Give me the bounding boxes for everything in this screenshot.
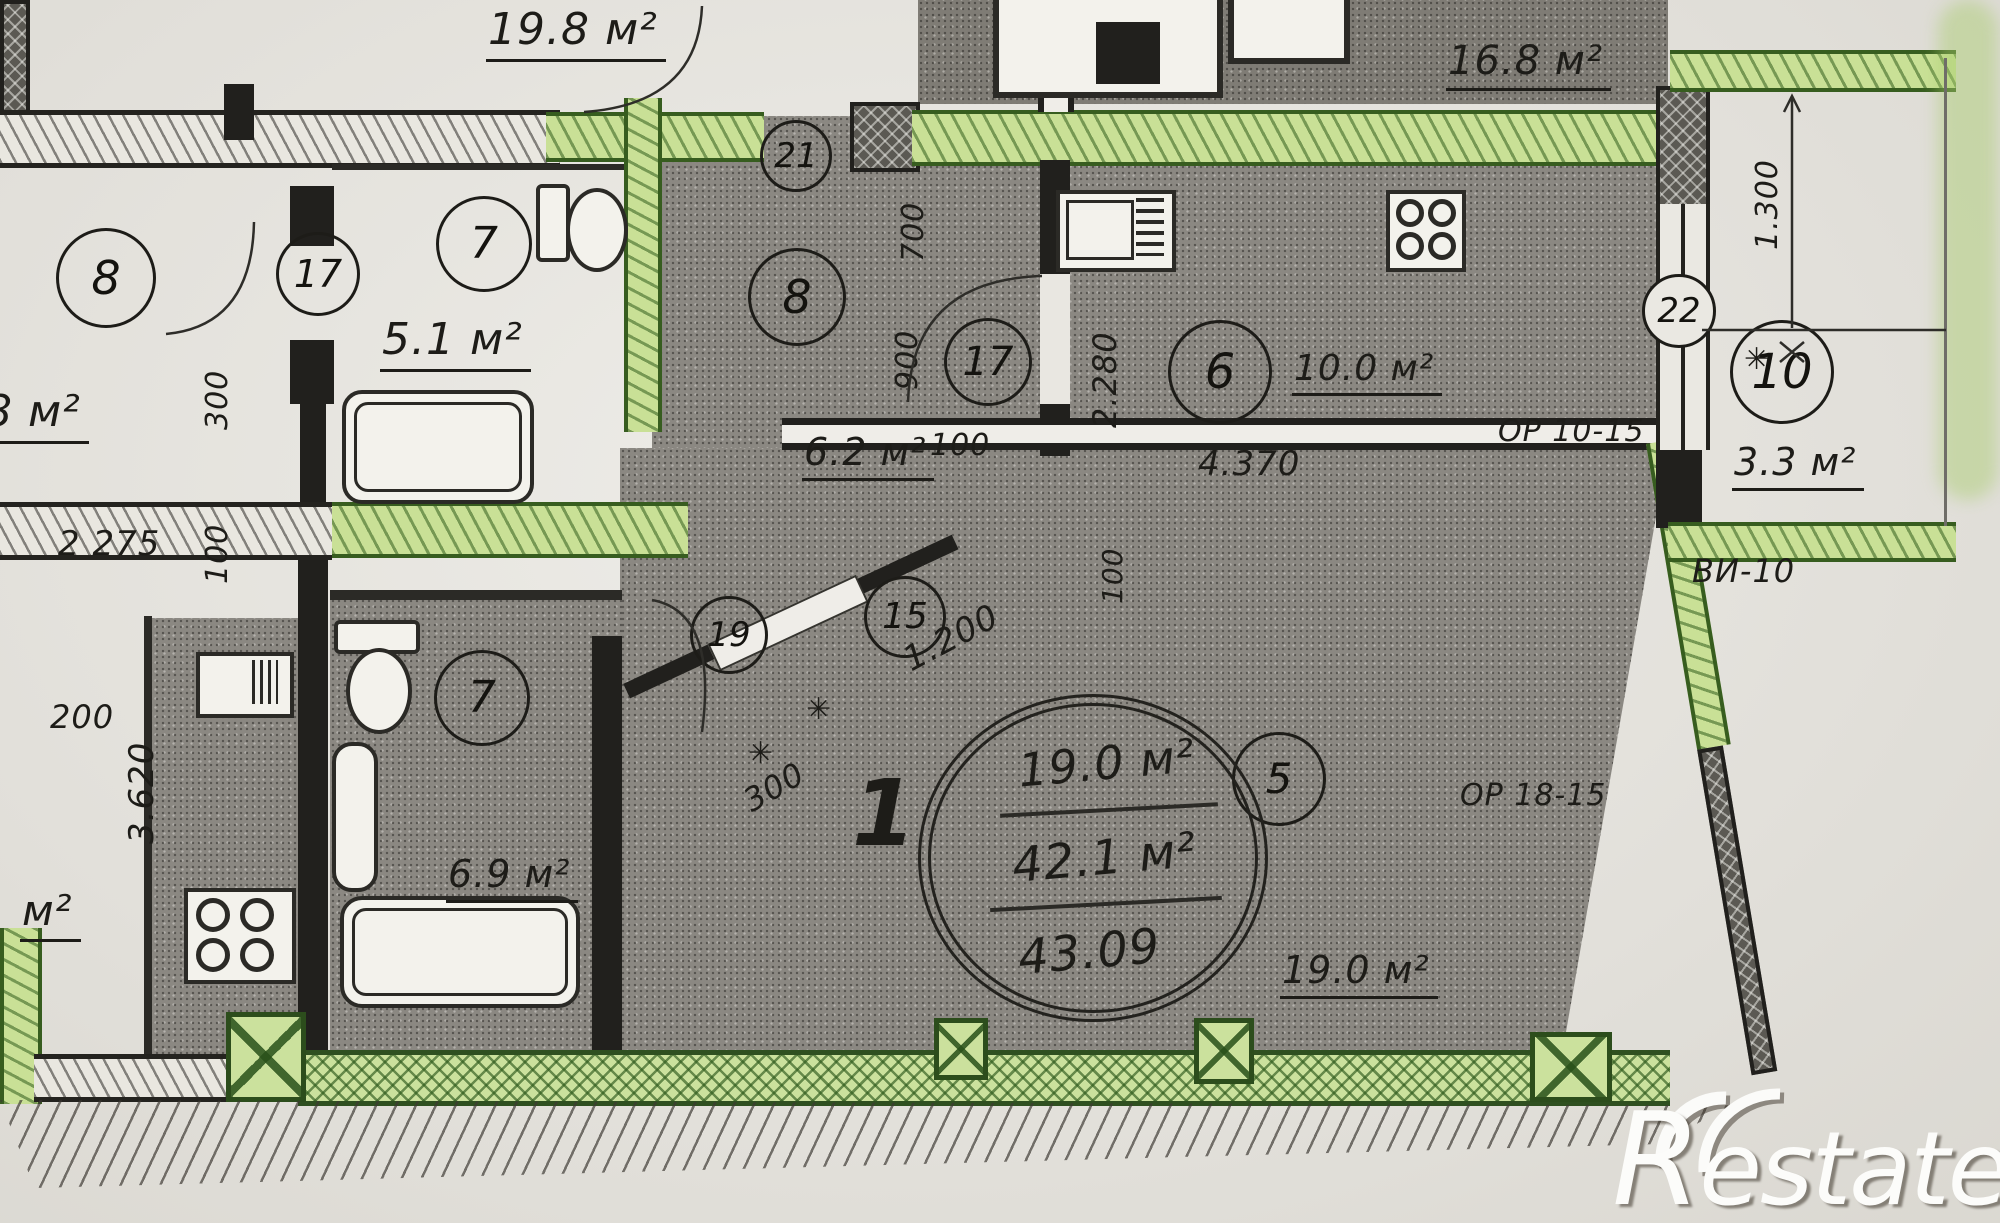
wall-left-vertical-mid	[300, 400, 326, 506]
wall-post-green-2	[1194, 1018, 1254, 1084]
wall-top-left-band	[0, 110, 560, 168]
wall-post-green-left	[226, 1012, 306, 1102]
room-number-circle: 8	[748, 248, 846, 346]
area-label: 10.0 м²	[1292, 348, 1442, 396]
room-number-circle: 19	[690, 596, 768, 674]
area-label-partial: м²	[20, 886, 81, 942]
balcony-right-line	[1944, 58, 1947, 526]
area-label: 6.9 м²	[446, 852, 578, 903]
wall-balcony-top	[1670, 50, 1956, 92]
wall-bottom-left-band	[34, 1054, 226, 1102]
wall-left-vertical-low	[298, 558, 328, 1060]
washer-left-flat	[196, 652, 294, 718]
kitchen-sink	[1056, 190, 1176, 272]
wall-left-block-2	[290, 340, 334, 404]
wall-column-top-left	[0, 0, 30, 120]
wall-column-center	[850, 102, 920, 172]
dimension-label: 4.370	[1198, 444, 1300, 484]
room-number-circle: 17	[276, 232, 360, 316]
area-label: 6.2 м²	[802, 430, 934, 481]
area-label: 16.8 м²	[1446, 38, 1611, 91]
duct-upper-room	[1096, 22, 1160, 84]
area-label: 5.1 м²	[380, 314, 531, 372]
wall-bathroom-right	[592, 636, 622, 1060]
dimension-label: 1.300	[1750, 159, 1785, 250]
wall-green-top-b	[912, 110, 1668, 166]
dimension-label: 700	[896, 202, 931, 262]
dimension-tick-icon: ✳	[806, 692, 832, 727]
dimension-label: 100	[930, 428, 990, 463]
toilet-tank-upper	[536, 184, 570, 262]
wall-post-green-right	[1530, 1032, 1612, 1102]
window-mark: ОР 18-15	[1460, 778, 1606, 813]
wall-post-green-1	[934, 1018, 988, 1080]
watermark-logo-text: Restate	[1612, 1086, 2000, 1223]
area-label: 3.3 м²	[1732, 440, 1864, 491]
dimension-tick-icon: ✳	[748, 736, 774, 771]
room-number-circle: 6	[1168, 320, 1272, 424]
dimension-label: 100	[1096, 548, 1129, 604]
wall-green-vertical-hall	[624, 98, 662, 432]
toilet-bowl-lower	[346, 648, 412, 734]
wall-bath-lower-top-line	[330, 590, 622, 600]
dimension-label: 200	[50, 698, 114, 736]
window-mark: ОР 10-15	[1498, 414, 1644, 449]
toilet-bowl-upper	[566, 188, 628, 272]
apartment-number: 1	[852, 760, 917, 867]
dimension-label: 300	[200, 370, 235, 430]
floor-plan-scan: 19.8 м² 16.8 м² 8 м² 5.1 м² 6.2 м² 10.0 …	[0, 0, 2000, 1223]
wall-mid-band	[0, 502, 332, 560]
cabinet-upper-room	[1228, 0, 1350, 64]
wall-door-post	[224, 84, 254, 140]
sink-lower	[332, 742, 378, 892]
room-number-circle: 17	[944, 318, 1032, 406]
stove-left-flat	[184, 888, 296, 984]
kitchen-stove	[1386, 190, 1466, 272]
wall-bath-top-line	[332, 164, 624, 170]
room-number-circle: 7	[434, 650, 530, 746]
room-number-circle: 7	[436, 196, 532, 292]
dimension-label: 2.280	[1086, 331, 1124, 428]
wall-exterior-bottom	[1656, 450, 1702, 528]
dimension-label: 900	[890, 330, 925, 390]
door-gap-kitchen	[1040, 274, 1070, 404]
window-mark: ВИ-10	[1692, 552, 1795, 590]
dimension-tick-icon: ✳	[1744, 342, 1770, 377]
dimension-label: 100	[200, 524, 235, 584]
room-number-circle: 21	[760, 120, 832, 192]
area-label: 19.0 м²	[1280, 948, 1438, 999]
wall-mid-band-green	[332, 502, 688, 558]
green-highlighter-smear	[1938, 0, 1998, 500]
area-label: 19.8 м²	[486, 4, 666, 62]
bathtub-upper	[342, 390, 534, 504]
area-label: 8 м²	[0, 386, 89, 444]
room-number-circle: 8	[56, 228, 156, 328]
terrain-hatching	[0, 1100, 1730, 1188]
wall-exterior-top	[1656, 86, 1710, 212]
bathtub-lower	[340, 896, 580, 1008]
room-number-circle: 22	[1642, 274, 1716, 348]
dimension-label: 3.620	[122, 742, 162, 844]
dimension-label: 2 275	[58, 524, 160, 564]
